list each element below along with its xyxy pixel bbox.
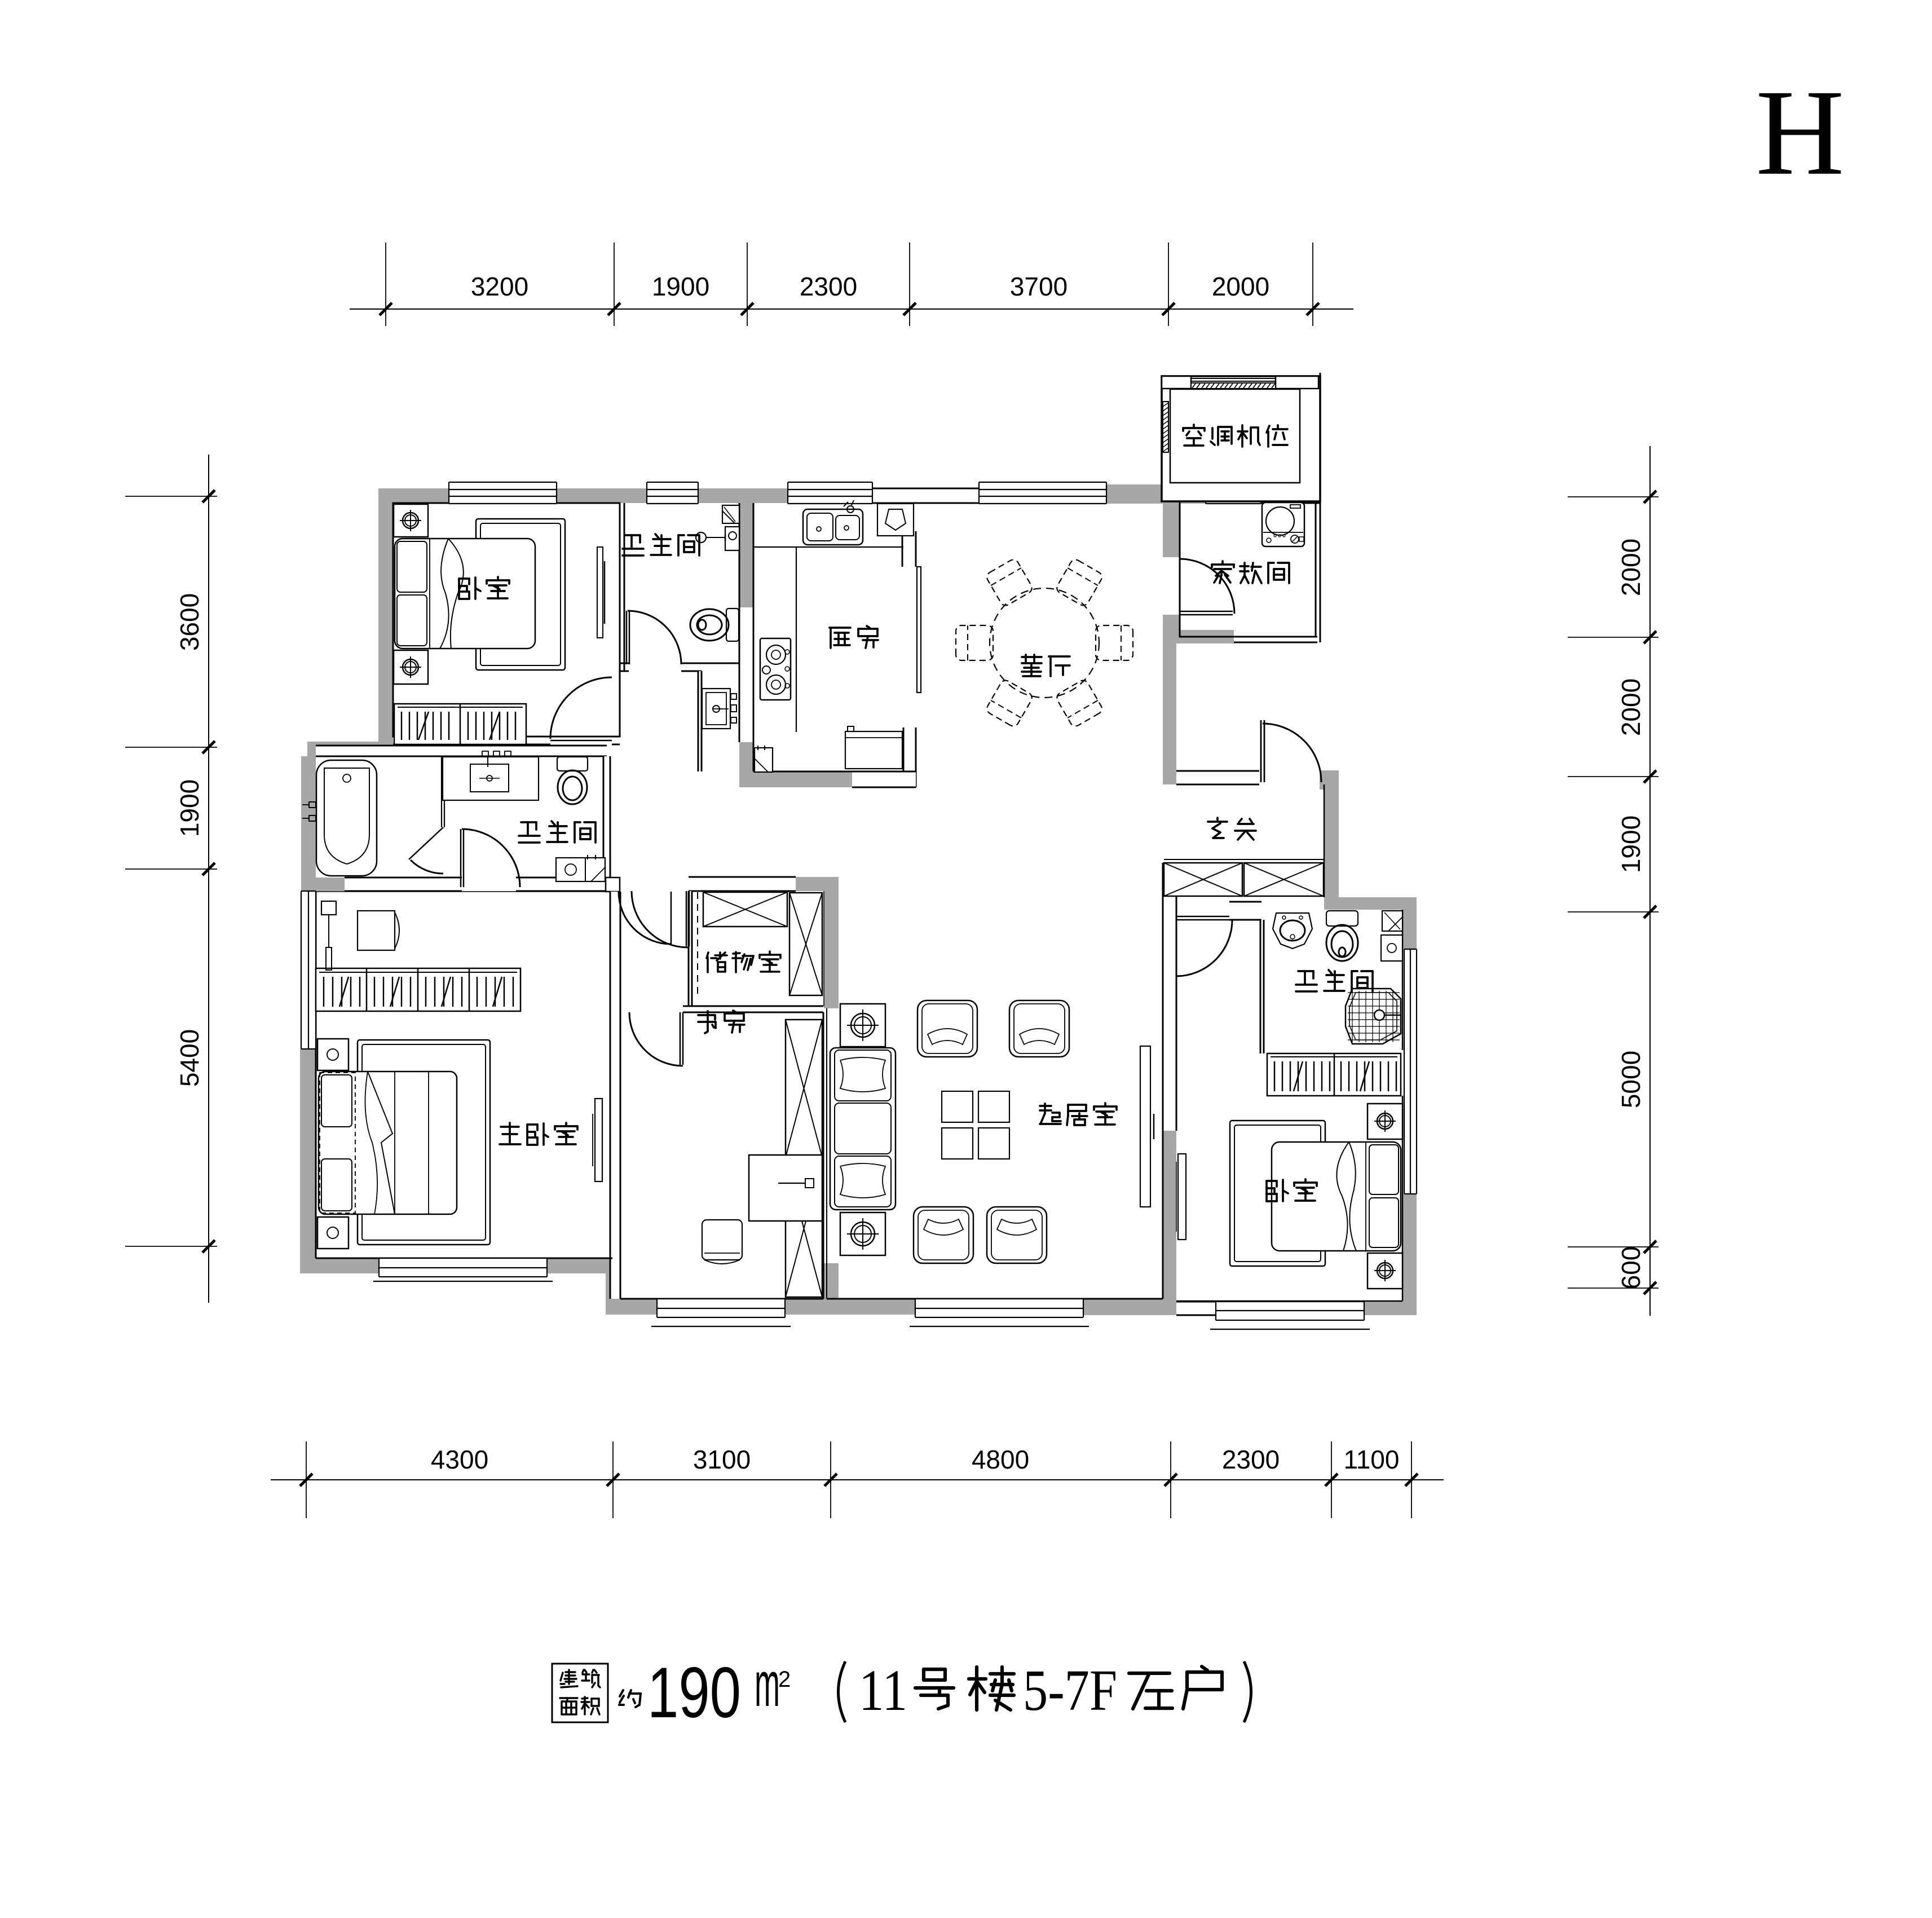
svg-text:11: 11 [859,1658,907,1723]
svg-text:190: 190 [647,1652,741,1732]
svg-text:m: m [755,1649,780,1719]
svg-text:1900: 1900 [1616,815,1646,873]
svg-text:2: 2 [778,1667,791,1692]
svg-text:2300: 2300 [1222,1445,1280,1474]
svg-text:600: 600 [1616,1246,1646,1290]
svg-text:1900: 1900 [652,272,709,301]
svg-text:5-7F: 5-7F [1023,1658,1117,1723]
svg-text:3100: 3100 [693,1445,751,1474]
svg-text:1900: 1900 [175,779,204,837]
svg-text:3600: 3600 [175,593,204,651]
svg-text:4300: 4300 [431,1445,488,1474]
svg-text:3200: 3200 [471,272,528,301]
svg-text:2000: 2000 [1616,539,1646,596]
svg-text:H: H [1755,65,1844,201]
svg-text:4800: 4800 [972,1445,1029,1474]
svg-text:1100: 1100 [1344,1445,1400,1474]
svg-text:2000: 2000 [1212,272,1269,301]
svg-text:2300: 2300 [800,272,857,301]
svg-text:3700: 3700 [1010,272,1068,301]
svg-text:5000: 5000 [1616,1051,1646,1108]
svg-text:2000: 2000 [1616,678,1646,736]
svg-text:5400: 5400 [175,1029,204,1087]
